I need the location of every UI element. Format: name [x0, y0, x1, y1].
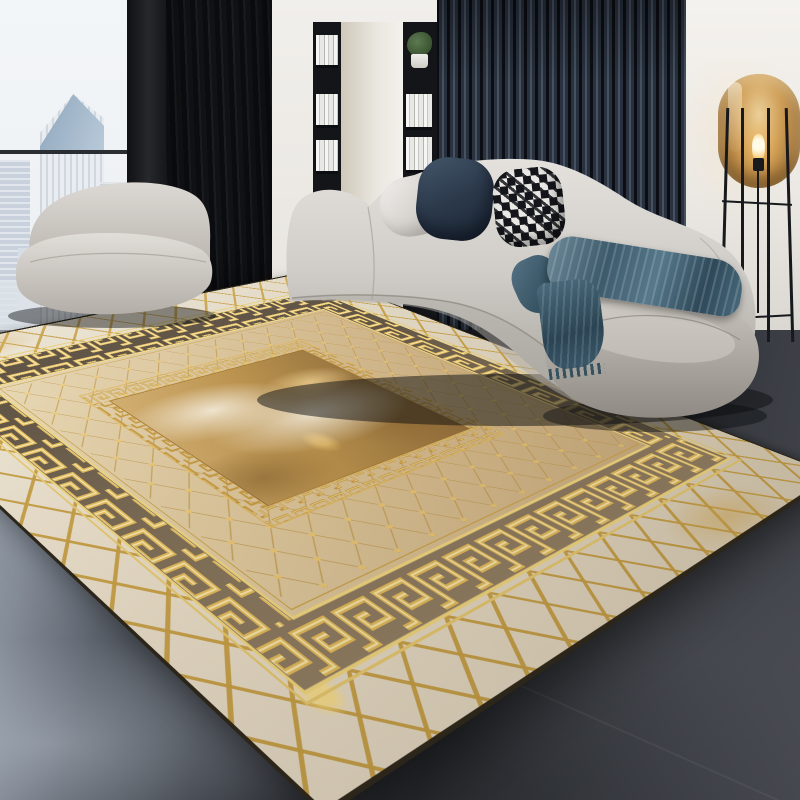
furniture-layer [0, 0, 800, 800]
pillow-houndstooth [490, 165, 568, 250]
bench-seat [16, 233, 212, 314]
pillow-navy [413, 154, 497, 243]
living-room-photo [0, 0, 800, 800]
